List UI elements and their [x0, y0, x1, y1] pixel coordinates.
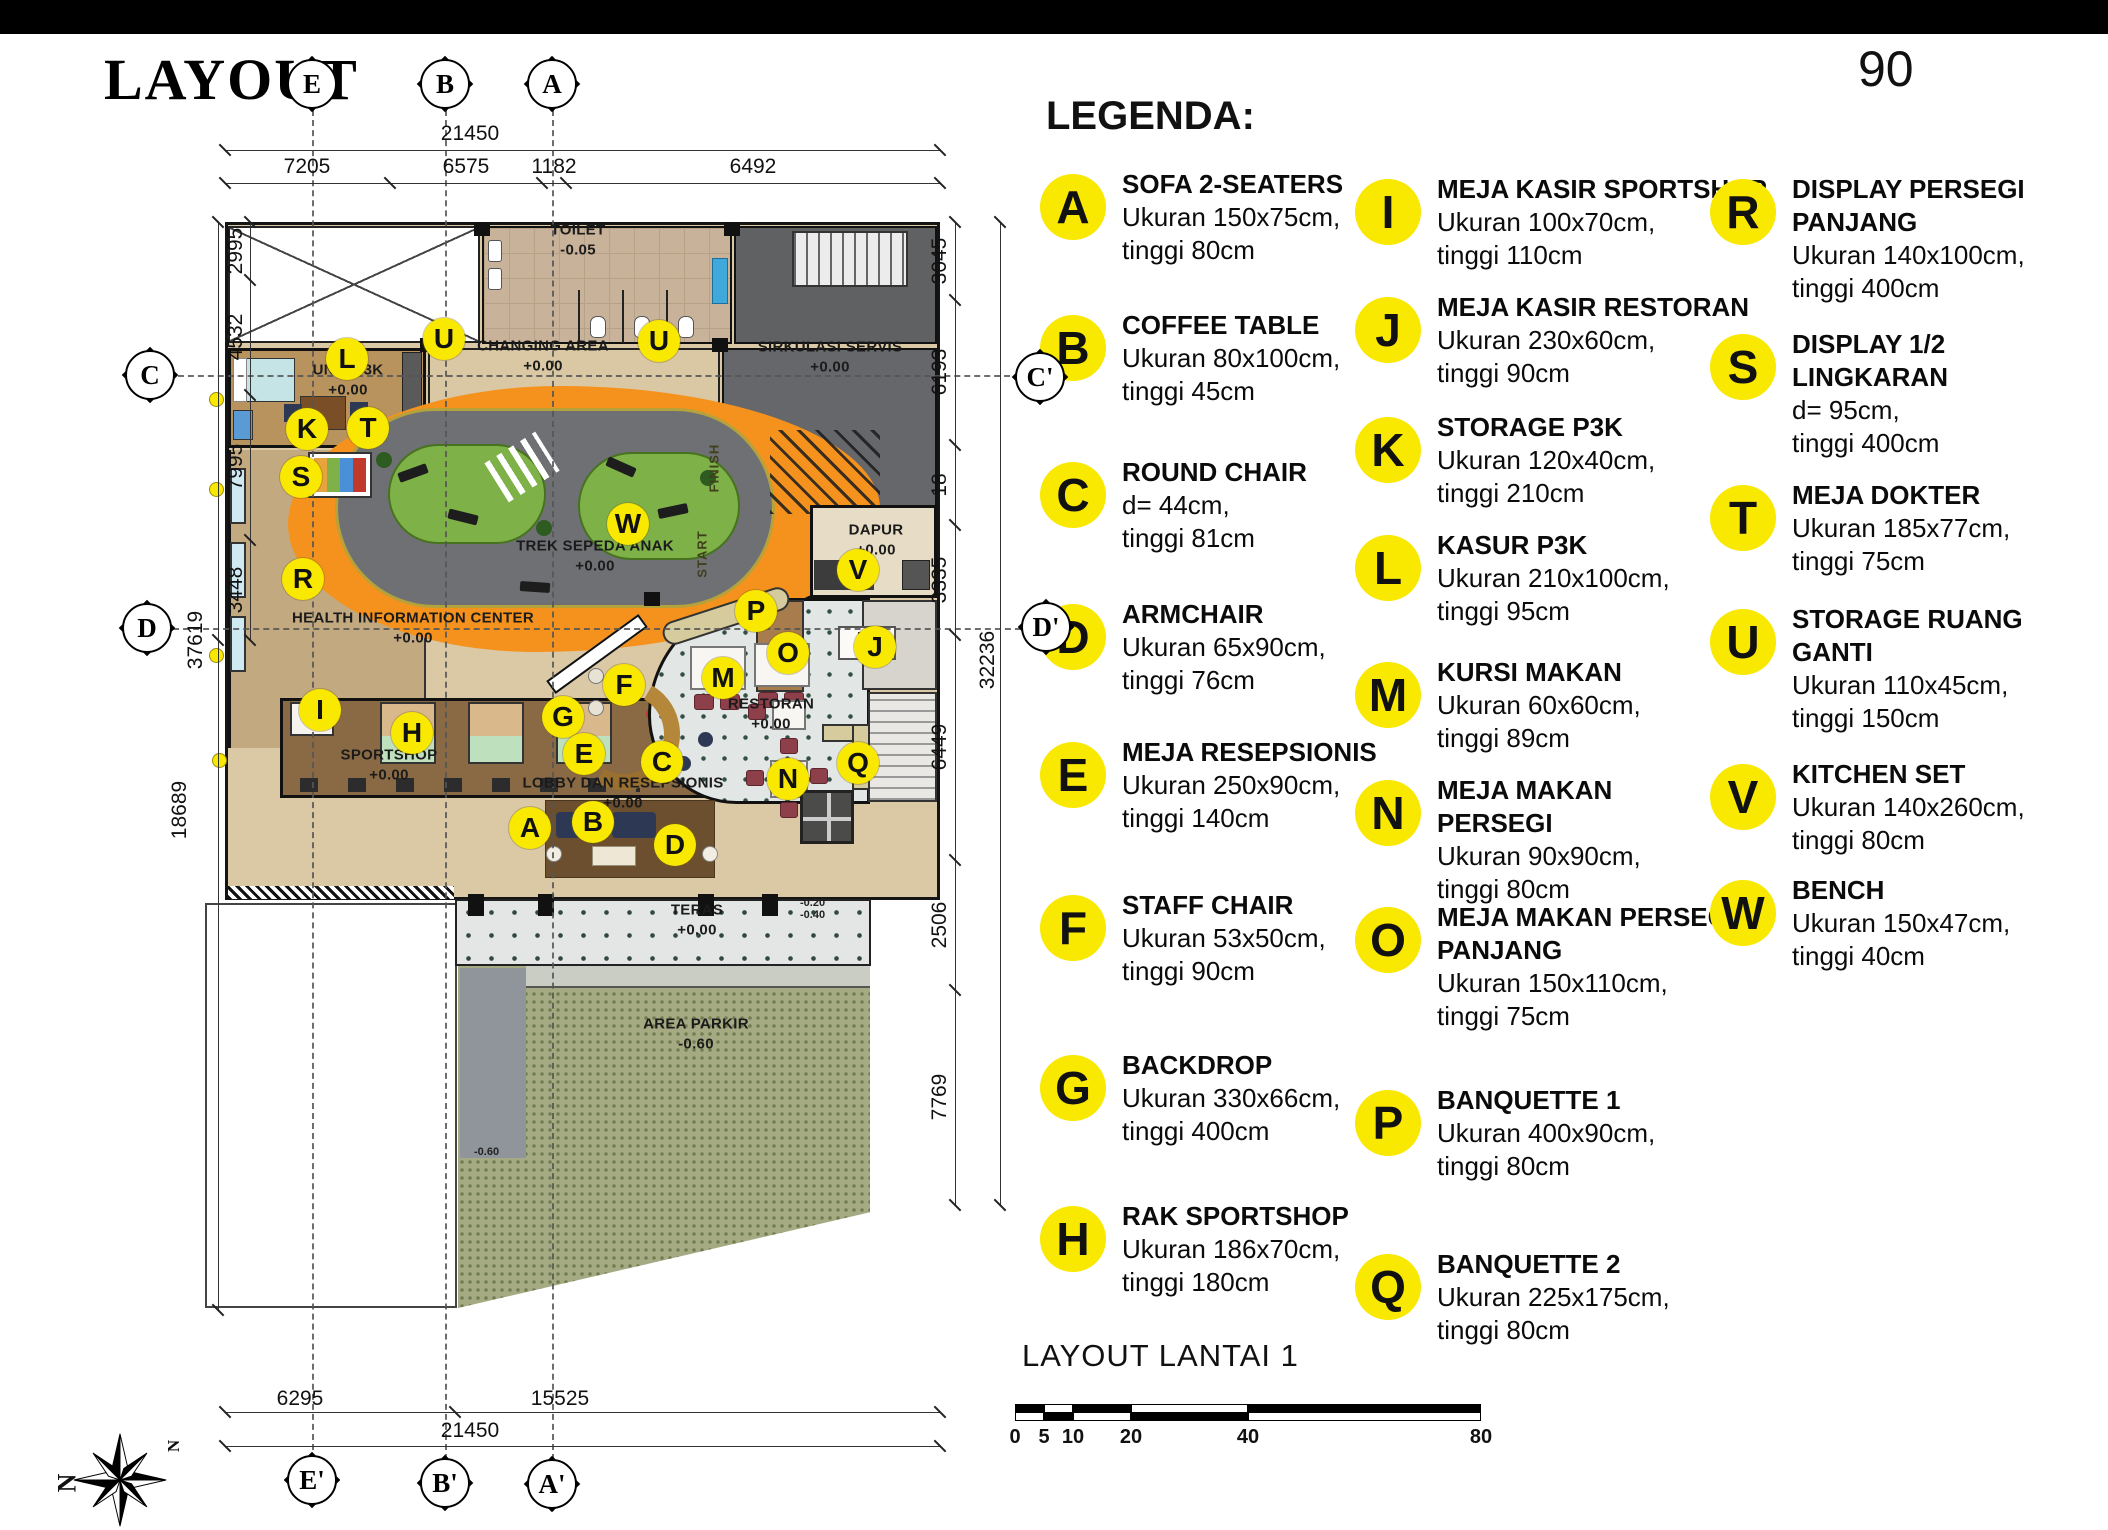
coffee-table: [592, 846, 636, 866]
column: [474, 222, 490, 236]
dimension-label: 15525: [531, 1387, 589, 1411]
tree: [536, 520, 552, 536]
dimension-label: 3448: [224, 567, 248, 614]
section-marker-bottom-0: E': [284, 1452, 340, 1508]
dining-chair: [780, 738, 798, 754]
scale-bar-segment: [1015, 1412, 1044, 1421]
section-marker-letter: D: [122, 603, 172, 653]
sofa: [612, 812, 656, 838]
dimension-line: [250, 222, 251, 640]
plan-marker-j: J: [854, 626, 896, 668]
round-chair-navy: [698, 732, 713, 747]
toilet-wc: [590, 316, 606, 338]
dimension-line: [225, 183, 940, 184]
dining-chair: [780, 802, 798, 818]
north-label-small: N: [164, 1440, 184, 1452]
compass-icon: [72, 1432, 168, 1528]
dimension-line: [955, 222, 956, 1205]
room-label-sportshop: SPORTSHOP+0.00: [341, 746, 438, 785]
dimension-label: 6492: [730, 155, 777, 179]
legend-badge-s: S: [1710, 334, 1776, 400]
dimension-label: 21450: [441, 122, 499, 146]
room-label-teras: TERAS+0.00: [671, 901, 723, 940]
display-board: [230, 616, 246, 672]
dimension-label: 1182: [531, 155, 576, 179]
drawing-title: LAYOUT LANTAI 1: [1022, 1338, 1299, 1374]
section-marker-top-2: A: [524, 56, 580, 112]
dimension-label: 18689: [168, 781, 192, 839]
room-label-restoran: RESTORAN+0.00: [728, 695, 814, 734]
pillow: [233, 358, 247, 402]
scale-bar-segment: [1248, 1412, 1481, 1421]
room-label-parkir: AREA PARKIR-0.60: [643, 1015, 749, 1054]
legend-badge-i: I: [1355, 179, 1421, 245]
section-marker-letter: C: [125, 350, 175, 400]
room-label-lobby: LOBBY DAN RESEPSIONIS+0.00: [522, 774, 723, 813]
plan-marker-c: C: [641, 741, 683, 783]
legend-item-text: KASUR P3KUkuran 210x100cm,tinggi 95cm: [1437, 529, 1767, 628]
column: [468, 894, 484, 916]
scale-bar-label: 20: [1120, 1426, 1142, 1449]
wall-marker-dot: [212, 753, 227, 768]
plan-marker-i: I: [299, 689, 341, 731]
track-start-label: START: [695, 530, 710, 577]
dimension-label: 2995: [224, 228, 248, 275]
dimension-label: 6575: [443, 155, 490, 179]
legend-badge-v: V: [1710, 764, 1776, 830]
legend-item-text: SOFA 2-SEATERSUkuran 150x75cm,tinggi 80c…: [1122, 168, 1377, 267]
plan-marker-u: U: [638, 320, 680, 362]
parking-ramp: [460, 968, 526, 1158]
dimension-line: [225, 1446, 940, 1447]
legend-badge-j: J: [1355, 297, 1421, 363]
plan-marker-g: G: [542, 696, 584, 738]
legend-item-text: STORAGE RUANG GANTIUkuran 110x45cm,tingg…: [1792, 603, 2092, 735]
fridge: [902, 560, 930, 590]
dimension-label: 3045: [928, 238, 952, 285]
dining-chair: [810, 768, 828, 784]
section-marker-letter: A: [527, 59, 577, 109]
plan-marker-o: O: [767, 632, 809, 674]
plan-marker-l: L: [326, 338, 368, 380]
column: [762, 894, 778, 916]
legend-heading: LEGENDA:: [1046, 94, 1255, 139]
plan-marker-w: W: [607, 503, 649, 545]
legend-item-text: MEJA DOKTERUkuran 185x77cm,tinggi 75cm: [1792, 479, 2092, 578]
dimension-label: 6295: [277, 1387, 324, 1411]
stairs-bottom: [868, 692, 937, 802]
plan-marker-n: N: [767, 758, 809, 800]
dimension-label: 4532: [224, 314, 248, 361]
legend-item-text: KITCHEN SETUkuran 140x260cm,tinggi 80cm: [1792, 758, 2092, 857]
legend-item-text: COFFEE TABLEUkuran 80x100cm,tinggi 45cm: [1122, 309, 1377, 408]
legend-item-text: STAFF CHAIRUkuran 53x50cm,tinggi 90cm: [1122, 889, 1377, 988]
section-gridline-vertical: [445, 100, 447, 1460]
section-marker-bottom-2: A': [524, 1456, 580, 1512]
plan-marker-f: F: [603, 664, 645, 706]
legend-badge-k: K: [1355, 417, 1421, 483]
legend-badge-o: O: [1355, 907, 1421, 973]
legend-item-text: DISPLAY 1/2 LINGKARANd= 95cm,tinggi 400c…: [1792, 328, 2092, 460]
legend-badge-a: A: [1040, 174, 1106, 240]
legend-item-text: ROUND CHAIRd= 44cm,tinggi 81cm: [1122, 456, 1377, 555]
section-marker-left-1: D: [119, 600, 175, 656]
plan-marker-t: T: [347, 407, 389, 449]
legend-item-text: BANQUETTE 1Ukuran 400x90cm,tinggi 80cm: [1437, 1084, 1767, 1183]
plan-marker-s: S: [280, 456, 322, 498]
plan-marker-k: K: [286, 408, 328, 450]
section-marker-letter: A': [527, 1459, 577, 1509]
legend-item-text: RAK SPORTSHOPUkuran 186x70cm,tinggi 180c…: [1122, 1200, 1377, 1299]
column: [644, 592, 660, 606]
section-marker-top-0: E: [284, 56, 340, 112]
dimension-label: 7769: [928, 1074, 952, 1121]
dimension-label: 21450: [441, 1419, 499, 1443]
plan-marker-h: H: [391, 712, 433, 754]
section-marker-right-1: D': [1018, 599, 1074, 655]
legend-badge-t: T: [1710, 485, 1776, 551]
toilet-wc: [678, 316, 694, 338]
legend-badge-w: W: [1710, 880, 1776, 946]
wall-marker-dot: [209, 648, 224, 663]
column: [724, 222, 740, 236]
section-marker-letter: D': [1021, 602, 1071, 652]
scale-bar: 0510204080: [1015, 1404, 1483, 1450]
scale-bar-label: 40: [1237, 1426, 1259, 1449]
stairs-top: [792, 231, 908, 287]
section-marker-right-0: C': [1012, 349, 1068, 405]
section-marker-letter: C': [1015, 352, 1065, 402]
section-gridline-vertical: [312, 100, 314, 1460]
page-number: 90: [1858, 40, 1914, 98]
stall-wall: [578, 290, 580, 343]
scale-bar-segment: [1073, 1412, 1131, 1421]
legend-item-text: BACKDROPUkuran 330x66cm,tinggi 400cm: [1122, 1049, 1377, 1148]
legend-badge-c: C: [1040, 462, 1106, 528]
legend-badge-u: U: [1710, 609, 1776, 675]
dimension-label: 3335: [928, 557, 952, 604]
legend-item-text: ARMCHAIRUkuran 65x90cm,tinggi 76cm: [1122, 598, 1377, 697]
shelf: [468, 702, 524, 764]
spot-level-label: -0.40: [800, 909, 825, 921]
side-table: [546, 846, 562, 862]
legend-badge-f: F: [1040, 895, 1106, 961]
dimension-label: 6449: [928, 724, 952, 771]
stall-wall: [622, 290, 624, 343]
room-label-hic: HEALTH INFORMATION CENTER+0.00: [292, 609, 534, 648]
wall-marker-dot: [209, 482, 224, 497]
tree: [376, 452, 392, 468]
dimension-line: [225, 1412, 940, 1413]
spot-level-label: -0.20: [800, 897, 825, 909]
wall-marker-dot: [209, 392, 224, 407]
legend-badge-l: L: [1355, 535, 1421, 601]
dining-chair: [694, 694, 714, 710]
scale-bar-label: 10: [1062, 1426, 1084, 1449]
dimension-label: 7205: [284, 155, 331, 179]
plan-marker-q: Q: [837, 742, 879, 784]
legend-item-text: BENCHUkuran 150x47cm,tinggi 40cm: [1792, 874, 2092, 973]
section-marker-left-0: C: [122, 347, 178, 403]
legend-badge-h: H: [1040, 1206, 1106, 1272]
dimension-line: [225, 150, 940, 151]
north-label: N: [52, 1474, 82, 1493]
plan-marker-p: P: [735, 590, 777, 632]
dimension-label: 7995: [224, 444, 248, 491]
legend-item-text: MEJA RESEPSIONISUkuran 250x90cm,tinggi 1…: [1122, 736, 1377, 835]
legend-item-text: KURSI MAKANUkuran 60x60cm,tinggi 89cm: [1437, 656, 1767, 755]
section-marker-bottom-1: B': [417, 1455, 473, 1511]
room-label-trek: TREK SEPEDA ANAK+0.00: [516, 537, 674, 576]
sink: [488, 240, 502, 262]
top-black-bar: [0, 0, 2108, 34]
drawing-sheet: LAYOUT 90 LEGENDA: 214507205657511826492…: [0, 0, 2108, 1530]
dimension-label: 37619: [184, 611, 208, 669]
round-chair: [588, 700, 604, 716]
plan-marker-r: R: [282, 558, 324, 600]
legend-badge-q: Q: [1355, 1254, 1421, 1320]
plan-marker-m: M: [702, 657, 744, 699]
scale-bar-label: 80: [1470, 1426, 1492, 1449]
bench: [520, 581, 551, 593]
section-marker-top-1: B: [417, 56, 473, 112]
section-marker-letter: B': [420, 1458, 470, 1508]
room-label-toilet: TOILET-0.05: [551, 221, 606, 260]
legend-badge-m: M: [1355, 662, 1421, 728]
legend-badge-g: G: [1040, 1055, 1106, 1121]
parking-lane: [526, 966, 870, 988]
scale-bar-label: 5: [1038, 1426, 1049, 1449]
room-label-changing: CHANGING AREA+0.00: [477, 337, 609, 376]
elevator: [800, 790, 854, 844]
sink: [488, 268, 502, 290]
legend-item-text: BANQUETTE 2Ukuran 225x175cm,tinggi 80cm: [1437, 1248, 1767, 1347]
legend-badge-p: P: [1355, 1090, 1421, 1156]
scale-bar-label: 0: [1009, 1426, 1020, 1449]
dimension-label: 6193: [928, 349, 952, 396]
fence-hatch: [228, 886, 454, 899]
dimension-label: 2506: [928, 902, 952, 949]
plan-marker-v: V: [837, 549, 879, 591]
section-marker-letter: B: [420, 59, 470, 109]
track-finish-label: FINISH: [707, 444, 722, 493]
plan-marker-a: A: [509, 807, 551, 849]
shower: [712, 258, 728, 304]
plan-marker-e: E: [563, 733, 605, 775]
scale-bar-segment: [1044, 1412, 1073, 1421]
bike-racks: [770, 430, 880, 514]
plan-marker-b: B: [572, 801, 614, 843]
yard: [205, 903, 457, 1308]
dimension-label: 32236: [976, 631, 1000, 689]
side-table: [702, 846, 718, 862]
dining-chair: [746, 770, 764, 786]
legend-badge-e: E: [1040, 742, 1106, 808]
round-chair: [588, 668, 604, 684]
scale-bar-segment: [1131, 1412, 1248, 1421]
plan-marker-d: D: [654, 824, 696, 866]
legend-badge-r: R: [1710, 179, 1776, 245]
legend-item-text: DISPLAY PERSEGI PANJANGUkuran 140x100cm,…: [1792, 173, 2092, 305]
dimension-line: [1000, 222, 1001, 1205]
section-marker-letter: E: [287, 59, 337, 109]
spot-level-label: -0.60: [474, 1146, 499, 1158]
plan-marker-u: U: [423, 318, 465, 360]
legend-badge-n: N: [1355, 780, 1421, 846]
dimension-line: [218, 222, 219, 1310]
room-label-sirkulasi: SIRKULASI SERVIS+0.00: [758, 338, 903, 377]
room-toilet: [482, 226, 732, 344]
dimension-label: 18: [928, 473, 952, 496]
section-marker-letter: E': [287, 1455, 337, 1505]
column: [712, 338, 728, 352]
